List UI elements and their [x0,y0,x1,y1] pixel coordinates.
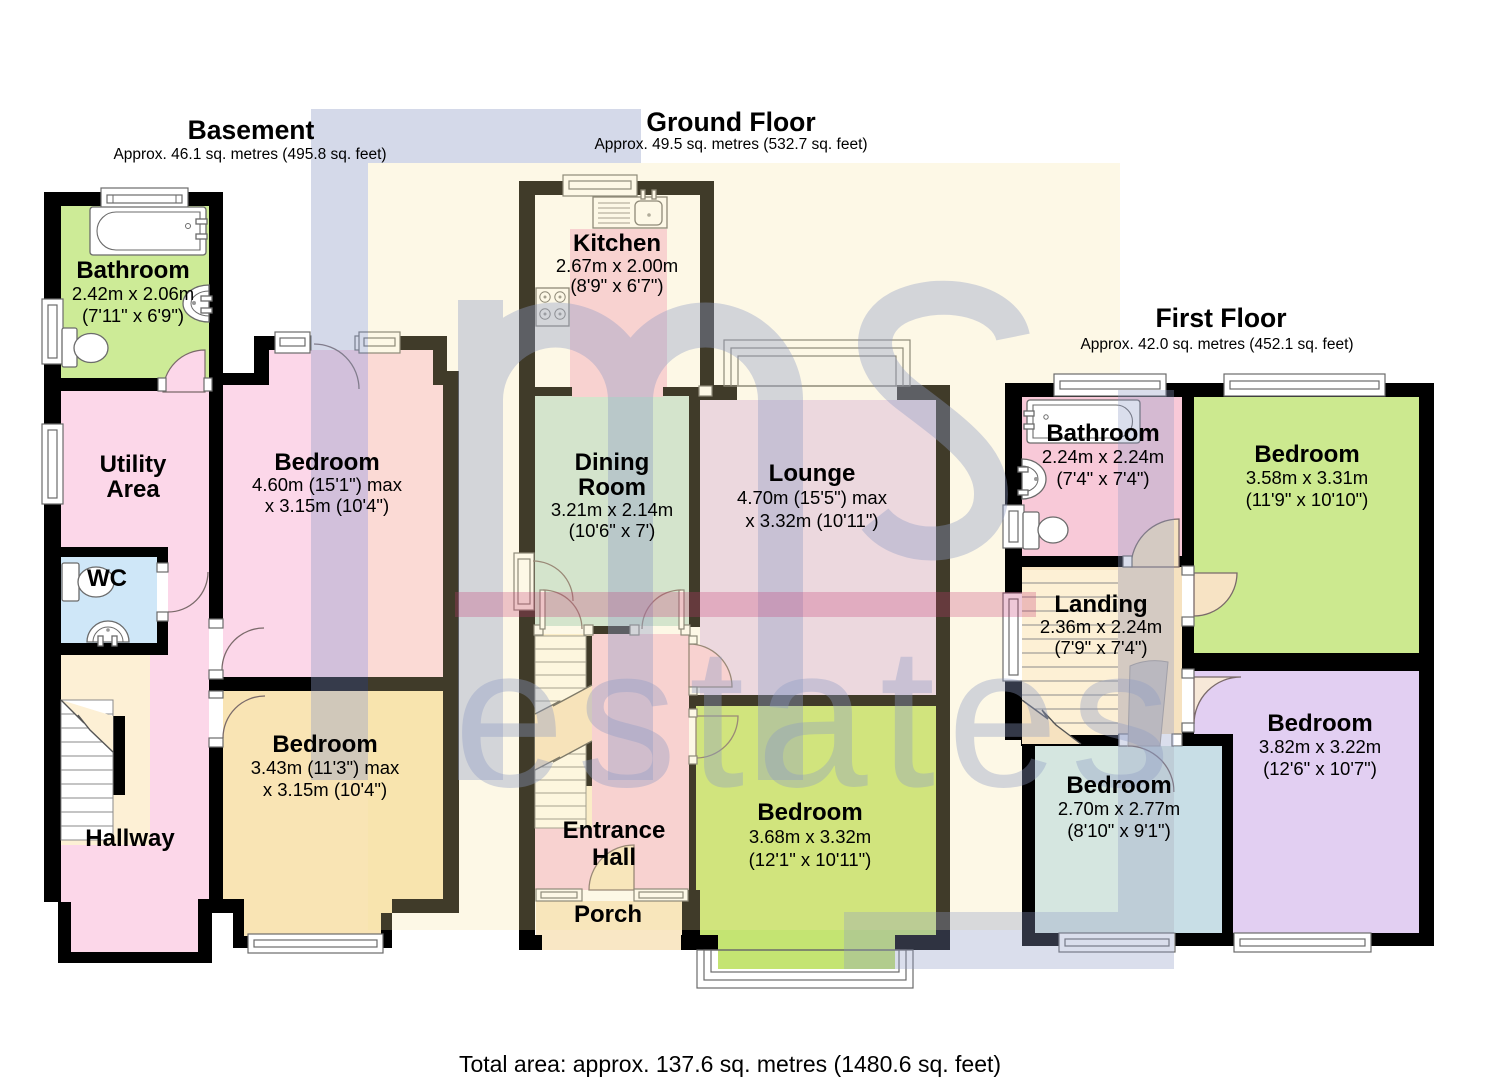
svg-text:(7'4" x 7'4"): (7'4" x 7'4") [1056,468,1149,489]
svg-text:x 3.15m (10'4"): x 3.15m (10'4") [263,779,387,800]
svg-text:(7'9" x 7'4"): (7'9" x 7'4") [1054,637,1147,658]
svg-text:Bedroom: Bedroom [272,731,377,758]
svg-text:4.60m (15'1") max: 4.60m (15'1") max [252,474,403,495]
svg-text:(11'9" x 10'10"): (11'9" x 10'10") [1246,489,1369,510]
svg-text:x 3.15m (10'4"): x 3.15m (10'4") [265,495,389,516]
svg-text:(12'6" x 10'7"): (12'6" x 10'7") [1263,758,1377,779]
svg-text:Bedroom: Bedroom [1066,772,1171,799]
svg-text:Bathroom: Bathroom [1046,420,1159,447]
svg-text:3.68m x 3.32m: 3.68m x 3.32m [749,826,871,847]
svg-text:(8'9" x 6'7"): (8'9" x 6'7") [570,275,663,296]
svg-text:Porch: Porch [574,901,642,928]
svg-text:Area: Area [106,476,160,503]
svg-text:3.58m x 3.31m: 3.58m x 3.31m [1246,467,1368,488]
svg-text:Bedroom: Bedroom [1267,710,1372,737]
svg-text:Hallway: Hallway [85,825,175,852]
svg-text:3.21m x 2.14m: 3.21m x 2.14m [551,499,673,520]
svg-text:Bedroom: Bedroom [274,449,379,476]
svg-text:2.24m x 2.24m: 2.24m x 2.24m [1042,446,1164,467]
svg-text:2.36m x 2.24m: 2.36m x 2.24m [1040,616,1162,637]
svg-text:3.82m x 3.22m: 3.82m x 3.22m [1259,736,1381,757]
svg-text:Ground Floor: Ground Floor [646,107,815,137]
svg-text:Bedroom: Bedroom [1254,441,1359,468]
svg-text:Utility: Utility [100,451,167,478]
svg-text:Bathroom: Bathroom [76,257,189,284]
svg-text:2.42m x 2.06m: 2.42m x 2.06m [72,283,194,304]
svg-text:Dining: Dining [575,449,650,476]
svg-text:(8'10" x 9'1"): (8'10" x 9'1") [1067,820,1171,841]
svg-text:Bedroom: Bedroom [757,799,862,826]
svg-text:(7'11" x 6'9"): (7'11" x 6'9") [82,305,184,326]
svg-text:2.67m x 2.00m: 2.67m x 2.00m [556,255,678,276]
svg-text:4.70m (15'5") max: 4.70m (15'5") max [737,487,888,508]
svg-text:Approx. 49.5 sq. metres (532.7: Approx. 49.5 sq. metres (532.7 sq. feet) [594,136,867,153]
svg-text:Entrance: Entrance [563,817,666,844]
svg-text:First Floor: First Floor [1155,303,1286,333]
svg-text:2.70m x 2.77m: 2.70m x 2.77m [1058,798,1180,819]
svg-text:Hall: Hall [592,844,636,871]
svg-text:(10'6" x 7'): (10'6" x 7') [569,520,656,541]
svg-text:Landing: Landing [1054,591,1147,618]
svg-text:Room: Room [578,474,646,501]
svg-text:Lounge: Lounge [769,460,856,487]
svg-text:(12'1" x 10'11"): (12'1" x 10'11") [749,849,872,870]
svg-text:x 3.32m (10'11"): x 3.32m (10'11") [745,510,878,531]
svg-text:Approx. 46.1 sq. metres (495.8: Approx. 46.1 sq. metres (495.8 sq. feet) [113,146,386,163]
svg-text:Total area: approx. 137.6 sq.: Total area: approx. 137.6 sq. metres (14… [459,1051,1001,1077]
svg-text:Kitchen: Kitchen [573,230,661,257]
svg-text:Basement: Basement [188,115,315,145]
svg-text:Approx. 42.0 sq. metres (452.1: Approx. 42.0 sq. metres (452.1 sq. feet) [1080,336,1353,353]
svg-text:WC: WC [87,565,127,592]
svg-text:3.43m (11'3") max: 3.43m (11'3") max [251,757,400,778]
